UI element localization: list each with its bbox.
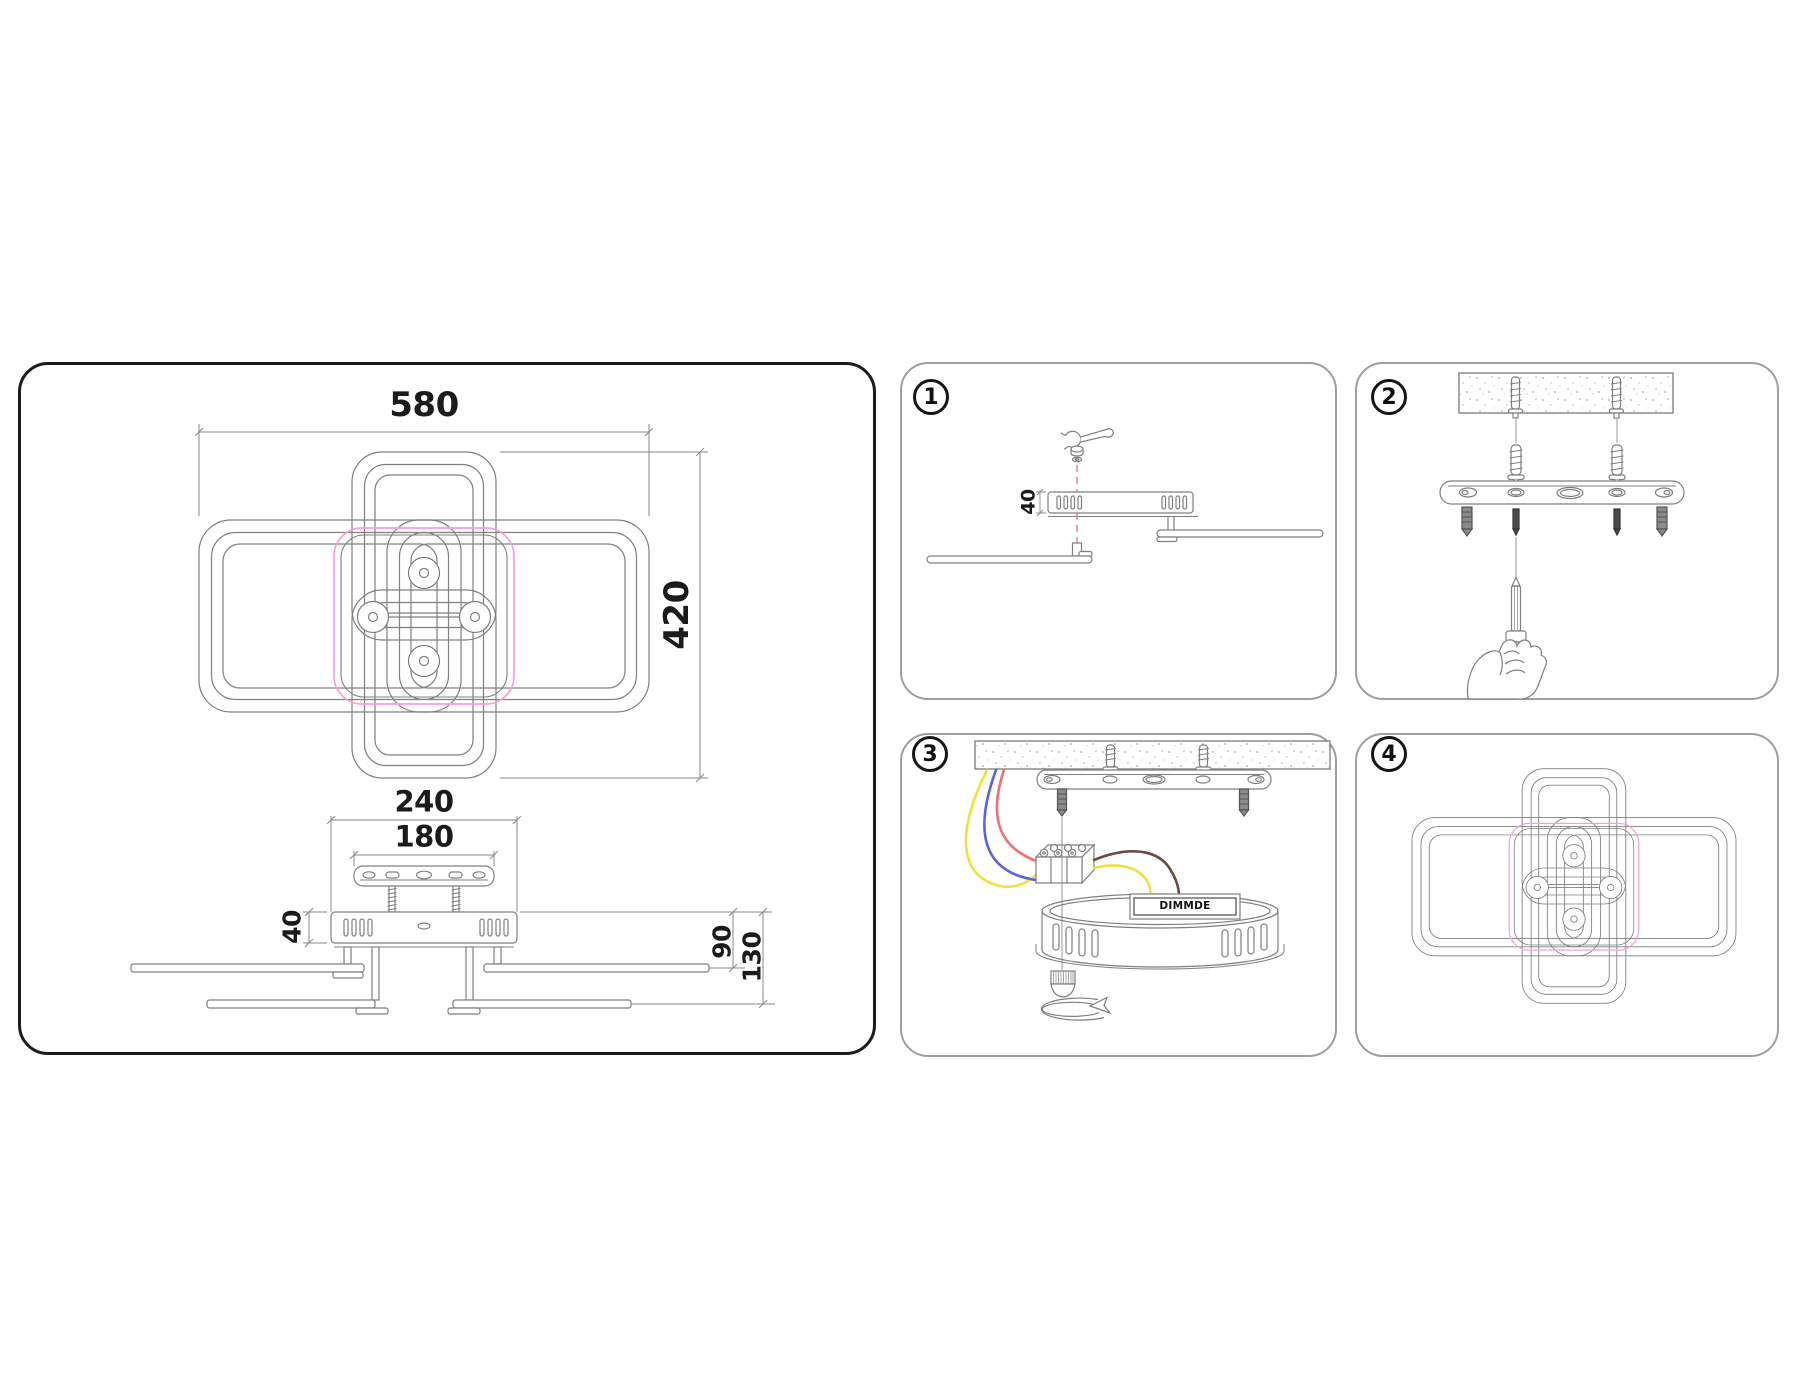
- dim-overall-width: 580: [389, 388, 458, 422]
- step-4-number: 4: [1381, 742, 1396, 767]
- dim-canopy-width: 240: [394, 788, 453, 817]
- dim-upper-ring-drop: 90: [710, 925, 735, 959]
- driver-module-label: DIMMDE: [1159, 900, 1210, 912]
- step-3-badge: 3: [912, 736, 948, 772]
- step1-dim-body-height: 40: [1020, 489, 1039, 514]
- step-3-number: 3: [922, 742, 937, 767]
- step-1-panel-frame: [900, 362, 1337, 700]
- step-2-number: 2: [1381, 385, 1396, 410]
- step-2-panel-frame: [1355, 362, 1779, 700]
- step-1-number: 1: [923, 385, 938, 410]
- dim-body-height: 40: [280, 910, 305, 944]
- step-1-badge: 1: [913, 379, 949, 415]
- dim-overall-height: 420: [660, 580, 694, 649]
- step-4-badge: 4: [1371, 736, 1407, 772]
- step-3-panel-frame: [900, 733, 1337, 1057]
- dim-lower-ring-drop: 130: [740, 932, 765, 983]
- dim-plate-width: 180: [394, 823, 453, 852]
- step-2-badge: 2: [1371, 379, 1407, 415]
- step-4-panel-frame: [1355, 733, 1779, 1057]
- instruction-sheet: 1 2 3 4 580 420 240 180 40 90 130 40 DIM…: [0, 0, 1800, 1400]
